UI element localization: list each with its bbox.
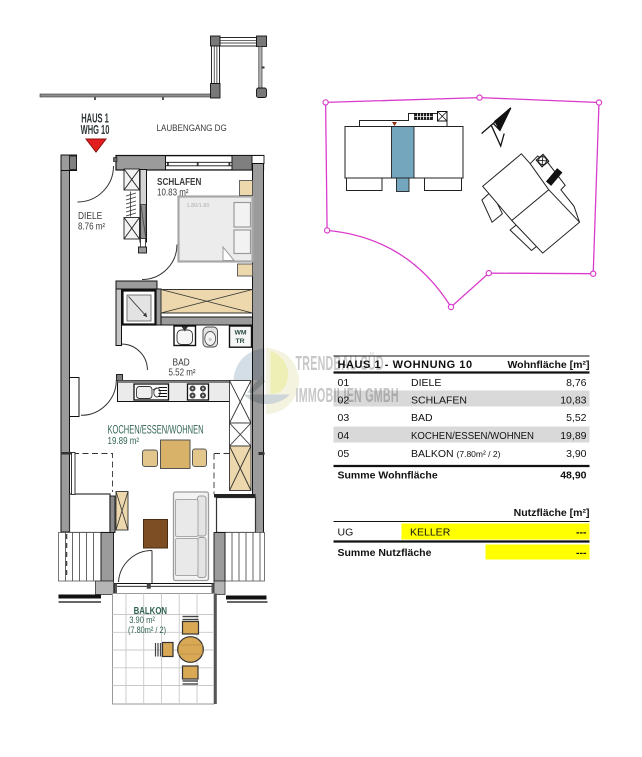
svg-text:DIELE: DIELE (411, 377, 441, 389)
svg-text:1.80/1.80: 1.80/1.80 (187, 203, 210, 209)
svg-text:8,76: 8,76 (566, 377, 587, 389)
svg-text:BALKON (7.80m² / 2): BALKON (7.80m² / 2) (411, 448, 501, 460)
svg-text:LAUBENGANG DG: LAUBENGANG DG (156, 122, 226, 133)
svg-text:Nutzfläche [m²]: Nutzfläche [m²] (514, 507, 590, 519)
svg-text:TRENDBAU SÜD: TRENDBAU SÜD (296, 351, 384, 375)
svg-text:KELLER: KELLER (410, 527, 451, 539)
svg-text:05: 05 (338, 448, 350, 460)
svg-text:UG: UG (338, 527, 354, 539)
svg-text:5,52: 5,52 (566, 412, 587, 424)
svg-text:Wohnfläche [m²]: Wohnfläche [m²] (507, 359, 589, 371)
svg-text:KOCHEN/ESSEN/WOHNEN: KOCHEN/ESSEN/WOHNEN (411, 430, 534, 442)
svg-text:BAD: BAD (411, 412, 433, 424)
svg-text:19,89: 19,89 (560, 430, 586, 442)
svg-text:SCHLAFEN: SCHLAFEN (411, 395, 467, 407)
svg-text:WHG 10: WHG 10 (81, 124, 110, 137)
svg-text:19.89 m²: 19.89 m² (108, 435, 140, 446)
svg-text:SCHLAFEN: SCHLAFEN (157, 176, 202, 187)
svg-text:10.83 m²: 10.83 m² (157, 187, 189, 198)
svg-text:---: --- (576, 527, 587, 539)
svg-text:8.76 m²: 8.76 m² (78, 221, 105, 232)
svg-text:Summe Wohnfläche: Summe Wohnfläche (338, 470, 438, 482)
svg-text:Summe Nutzfläche: Summe Nutzfläche (338, 547, 432, 559)
svg-text:WM: WM (235, 330, 247, 337)
svg-text:48,90: 48,90 (560, 470, 586, 482)
svg-text:---: --- (576, 547, 587, 559)
svg-text:(7.80m² / 2): (7.80m² / 2) (128, 624, 166, 635)
svg-text:TR: TR (236, 338, 245, 345)
svg-text:3,90: 3,90 (566, 448, 587, 460)
svg-text:5.52 m²: 5.52 m² (168, 367, 195, 378)
svg-text:04: 04 (338, 430, 350, 442)
svg-text:IMMOBILIEN GMBH: IMMOBILIEN GMBH (296, 384, 399, 407)
svg-text:03: 03 (338, 412, 350, 424)
svg-text:10,83: 10,83 (560, 395, 586, 407)
